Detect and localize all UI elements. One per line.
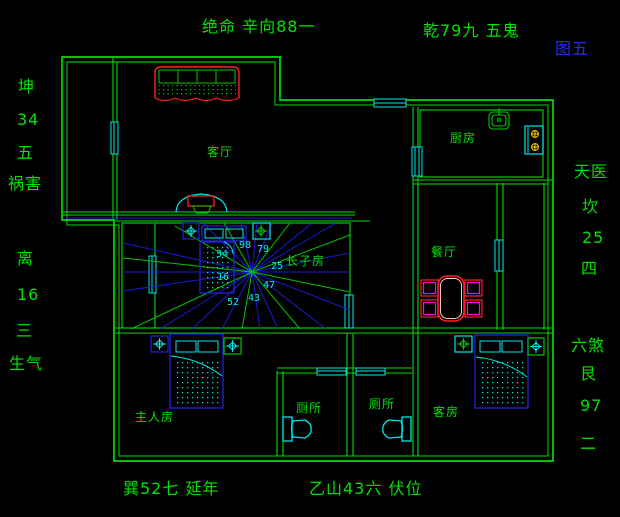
tv-cabinet — [176, 194, 227, 213]
room-label-master: 主人房 — [135, 411, 174, 423]
room-label-living: 客厅 — [207, 146, 233, 158]
annotation-left-lower-1: 离 — [17, 251, 34, 267]
compass-rays — [123, 223, 350, 329]
annotation-top-right: 乾79九 五鬼 — [423, 23, 519, 39]
annotation-right-upper-4: 四 — [581, 261, 598, 277]
compass-number: 43 — [248, 294, 260, 304]
cad-floorplan-canvas[interactable]: 绝命 辛向88一 乾79九 五鬼 图五 坤 34 五 祸害 离 16 三 生气 … — [0, 0, 620, 517]
room-label-dining: 餐厅 — [431, 246, 457, 258]
ceiling-fixture-icon — [528, 338, 544, 355]
annotation-left-lower-3: 三 — [16, 323, 33, 339]
annotation-right-lower-1: 六煞 — [571, 338, 605, 354]
dining-chairs — [421, 280, 482, 317]
room-label-guest: 客房 — [433, 406, 459, 418]
master-bed — [170, 334, 223, 408]
annotation-right-lower-2: 艮 — [580, 366, 597, 382]
annotation-left-lower-4: 生气 — [9, 356, 43, 372]
dining-table — [421, 276, 482, 321]
window-dining-right — [495, 240, 503, 271]
kitchen-stove — [525, 126, 543, 154]
annotation-left-upper-2: 34 — [17, 112, 39, 128]
room-label-kitchen: 厨房 — [450, 132, 476, 144]
annotation-left-upper-3: 五 — [17, 145, 34, 161]
window-left-partition — [111, 122, 118, 154]
kitchen-sink — [489, 108, 509, 129]
ceiling-fixture-icon — [224, 338, 241, 354]
compass-number: 79 — [257, 245, 269, 255]
window-toilet-right — [356, 368, 385, 375]
window-toilet-left — [317, 368, 346, 375]
ceiling-fixture-icon — [455, 336, 472, 352]
window-stair-right — [345, 295, 353, 328]
room-label-eldest-son: 长子房 — [286, 255, 325, 267]
annotation-bottom-left: 巽52七 延年 — [123, 481, 219, 497]
sofa — [155, 67, 239, 101]
annotation-left-upper-4: 祸害 — [8, 176, 42, 192]
annotation-left-upper-1: 坤 — [18, 79, 35, 95]
annotation-right-lower-3: 97 — [580, 398, 602, 414]
room-label-toilet-right: 厕所 — [369, 398, 395, 410]
compass-number: 16 — [217, 273, 229, 283]
window-kitchen-door — [412, 147, 422, 176]
ceiling-fixture-icon — [183, 223, 199, 239]
room-label-toilet-left: 厕所 — [296, 402, 322, 414]
compass-number: 25 — [271, 262, 283, 272]
annotation-right-upper-2: 坎 — [582, 199, 599, 215]
annotation-right-upper-1: 天医 — [574, 164, 608, 180]
annotation-top-left: 绝命 辛向88一 — [202, 19, 315, 35]
compass-number: 52 — [227, 298, 239, 308]
compass-number: 34 — [216, 250, 228, 260]
compass-number: 98 — [239, 241, 251, 251]
window-top-hall — [374, 99, 406, 107]
annotation-bottom-right: 乙山43六 伏位 — [309, 481, 422, 497]
ceiling-fixture-icon — [151, 336, 168, 352]
annotation-right-upper-3: 25 — [582, 230, 604, 246]
guest-bed — [475, 335, 528, 408]
toilet-fixture — [383, 417, 411, 441]
annotation-right-lower-4: 二 — [580, 436, 597, 452]
figure-label: 图五 — [555, 41, 589, 57]
annotation-left-lower-2: 16 — [17, 287, 39, 303]
compass-number: 47 — [263, 281, 275, 291]
toilet-fixture — [283, 417, 311, 441]
